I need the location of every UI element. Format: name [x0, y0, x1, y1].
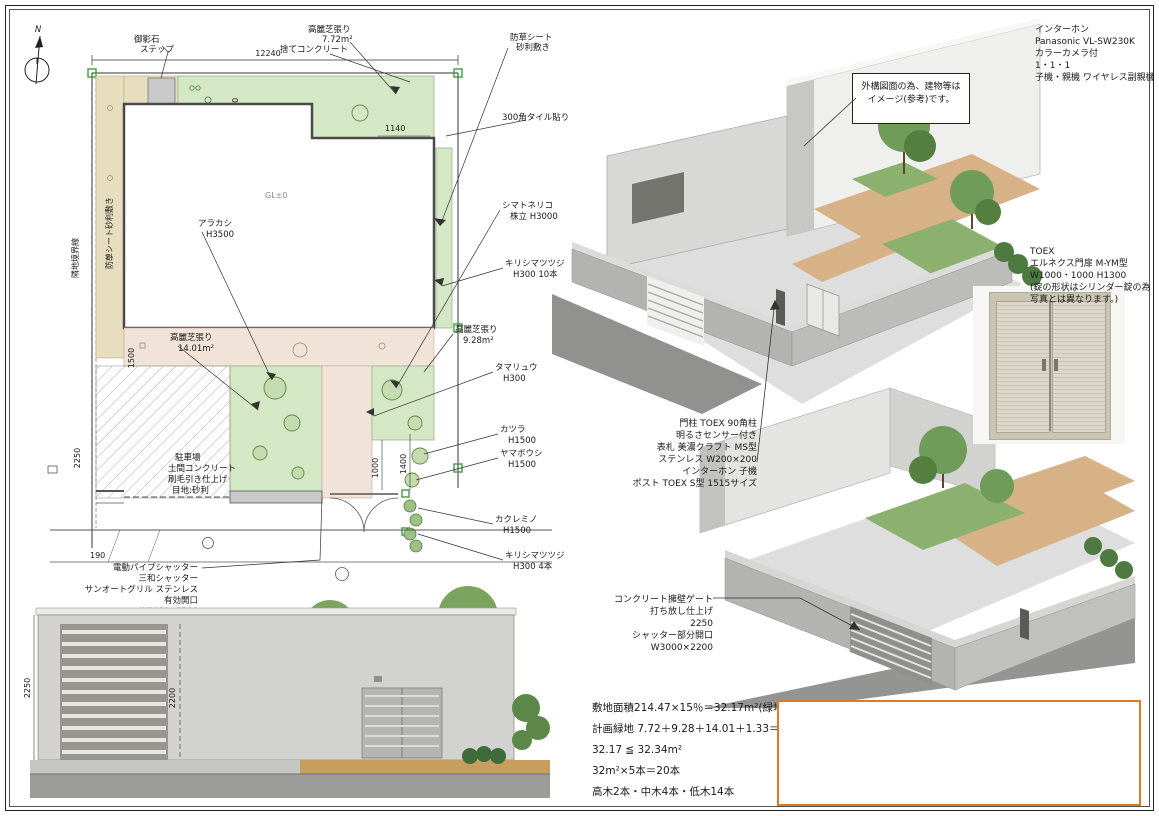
drawing-sheet: N 12240 隣地境界線 — [0, 0, 1159, 816]
dim-190: 190 — [90, 551, 105, 560]
toex-gate-spec: TOEX エルネクス門扉 M-YM型 W1000・1000 H1300 (錠の形… — [1030, 246, 1151, 306]
lawn-mid-label-2: 14.01m² — [178, 344, 214, 354]
site-plan: 12240 隣地境界線 防草シート砂利敷き — [30, 28, 570, 603]
gravel-label-2: 砂利敷き — [516, 42, 550, 53]
shutter-label-1: 電動パイプシャッター — [113, 562, 198, 573]
gravel-label-1: 防草シート — [510, 32, 553, 43]
gatepost-3d-2 — [1020, 608, 1029, 640]
door-panel-right — [1052, 301, 1106, 433]
arakashi-label-2: H3500 — [206, 230, 234, 240]
shutter-gate — [60, 624, 168, 760]
intercom-spec-line: 子機・親機 ワイヤレス副親機 — [1035, 72, 1155, 84]
boundary-left-label: 隣地境界線 — [70, 238, 80, 278]
gatepost-spec-line: ステンレス W200×200 — [585, 454, 757, 466]
dim-1400: 1400 — [399, 454, 408, 474]
gatepost-spec-line: 門柱 TOEX 90角柱 — [585, 418, 757, 430]
shimatoneriko-label-1: シマトネリコ — [502, 201, 553, 211]
note-line: 外構図面の為、建物等は — [853, 81, 969, 94]
kirishima4-label-1: キリシマツツジ — [505, 551, 565, 561]
lawn-mid-label-1: 高麗芝張り — [170, 332, 213, 343]
step-label-2: ステップ — [140, 45, 175, 55]
stamp-concrete-label: 捨てコンクリート — [280, 44, 348, 55]
tamaryu-label-1: タマリュウ — [495, 363, 538, 373]
dim-1000b: 1000 — [371, 458, 380, 478]
dim-2250: 2250 — [73, 448, 82, 468]
lawn-side-label-1: 高麗芝張り — [455, 324, 498, 335]
toex-spec-line: W1000・1000 H1300 — [1030, 270, 1151, 282]
door-handle-right — [1054, 359, 1058, 371]
doorbell-box — [374, 676, 382, 682]
gate-dimensions: 1000 1400 — [371, 434, 410, 490]
parking-label-2: 土間コンクリート — [168, 463, 236, 474]
kakuremino-label-1: カクレミノ — [495, 515, 538, 525]
shutter-label-2: 三和シャッター — [138, 574, 198, 584]
hedge-row — [462, 746, 506, 764]
dim-1140: 1140 — [385, 124, 405, 133]
gate2-label-line: 打ち放し仕上げ — [578, 606, 713, 618]
vent-double-door — [362, 676, 442, 758]
lawn-side-label-2: 9.28m² — [463, 336, 494, 346]
intercom-spec-line: インターホン — [1035, 24, 1155, 36]
gate2-label-line: コンクリート擁壁ゲート — [578, 594, 713, 606]
elevation-view: 2200 2250 — [30, 588, 550, 803]
gate2-label-line: シャッター部分開口 — [578, 630, 713, 642]
building-outline — [124, 104, 434, 328]
gate-swing-left — [330, 498, 364, 532]
building-image-note: 外構図面の為、建物等は イメージ(参考)です。 — [852, 73, 970, 124]
gatepost-3d — [776, 289, 785, 326]
kirishima4-label-2: H300 4本 — [513, 561, 553, 572]
gravel-strip-label: 防草シート砂利敷き — [104, 197, 114, 269]
yamaboushi-label-1: ヤマボウシ — [500, 449, 543, 459]
lawn-top-label-1: 高麗芝張り — [308, 24, 351, 35]
dim-12240: 12240 — [255, 49, 280, 58]
yamaboushi-label-2: H1500 — [508, 460, 536, 470]
water-tap-symbol — [48, 466, 57, 473]
iso-view-1 — [552, 14, 1044, 414]
step-label-1: 御影石 — [134, 34, 160, 45]
lawn-area-right — [372, 366, 434, 440]
gate2-label-line: 2250 — [578, 618, 713, 630]
gatepost-spec-line: 表札 美濃クラフト MS型 — [585, 442, 757, 454]
shrub-row-gate — [404, 500, 422, 552]
building-gl-label: GL±0 — [265, 191, 287, 200]
parking-label-3: 刷毛引き仕上げ — [168, 474, 228, 485]
walkway — [322, 366, 372, 498]
door-frame — [989, 292, 1111, 440]
parking-label-1: 駐車場 — [175, 452, 201, 463]
dim-2250-elev: 2250 — [23, 678, 32, 698]
shimatoneriko-label-2: 株立 H3000 — [510, 211, 558, 222]
intercom-spec-line: カラーカメラ付 — [1035, 48, 1155, 60]
toex-spec-line: TOEX — [1030, 246, 1151, 258]
stone-step — [148, 78, 175, 104]
gate2-label-line: W3000×2200 — [578, 642, 713, 654]
intercom-spec: インターホン Panasonic VL-SW230K カラーカメラ付 1・1・1… — [1035, 24, 1155, 84]
intercom-spec-line: Panasonic VL-SW230K — [1035, 36, 1155, 48]
concrete-gate-spec: コンクリート擁壁ゲート 打ち放し仕上げ 2250 シャッター部分開口 W3000… — [578, 594, 713, 654]
intercom-spec-line: 1・1・1 — [1035, 60, 1155, 72]
dim-2200: 2200 — [168, 688, 177, 708]
door-gap — [1049, 301, 1051, 431]
toex-spec-line: (錠の形状はシリンダー錠の為 — [1030, 282, 1151, 294]
kakuremino-label-2: H1500 — [503, 526, 531, 536]
lawn-strip-right — [436, 148, 452, 328]
wall-coping — [36, 608, 516, 615]
dim-1500: 1500 — [127, 348, 136, 368]
katsura-label-2: H1500 — [508, 436, 536, 446]
toex-spec-line: 写真とは異なります。) — [1030, 294, 1151, 306]
katsura-label-1: カツラ — [500, 425, 526, 435]
gatepost-spec-line: インターホン 子機 — [585, 466, 757, 478]
parking-label-4: 目地:砂利 — [172, 485, 209, 496]
title-block-placeholder — [777, 700, 1141, 806]
side-bushes — [512, 694, 550, 750]
gatepost-spec-line: ポスト TOEX S型 1515サイズ — [585, 478, 757, 490]
note-line: イメージ(参考)です。 — [853, 94, 969, 107]
door-handle-left — [1042, 359, 1046, 371]
arakashi-label-1: アラカシ — [198, 219, 232, 229]
gatepost-spec-line: 明るさセンサー付き — [585, 430, 757, 442]
tamaryu-label-2: H300 — [503, 374, 526, 384]
gatepost-spec: 門柱 TOEX 90角柱 明るさセンサー付き 表札 美濃クラフト MS型 ステン… — [585, 418, 757, 490]
gate-swing-right — [364, 498, 398, 532]
lawn-top-label-2: 7.72m² — [322, 35, 353, 45]
gate-door-photo — [973, 286, 1125, 444]
toex-spec-line: エルネクス門扉 M-YM型 — [1030, 258, 1151, 270]
